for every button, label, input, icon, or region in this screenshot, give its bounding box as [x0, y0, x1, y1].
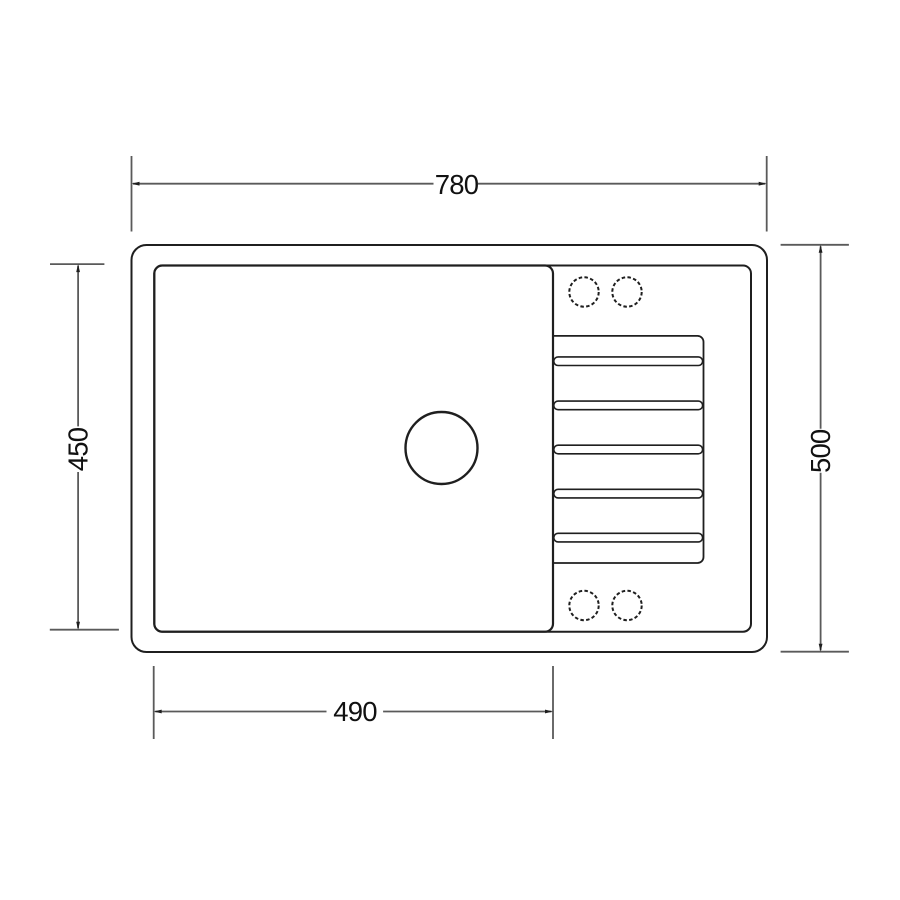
svg-text:450: 450 — [63, 427, 94, 471]
svg-text:490: 490 — [333, 696, 377, 727]
svg-text:780: 780 — [435, 169, 479, 200]
svg-text:500: 500 — [805, 429, 836, 473]
